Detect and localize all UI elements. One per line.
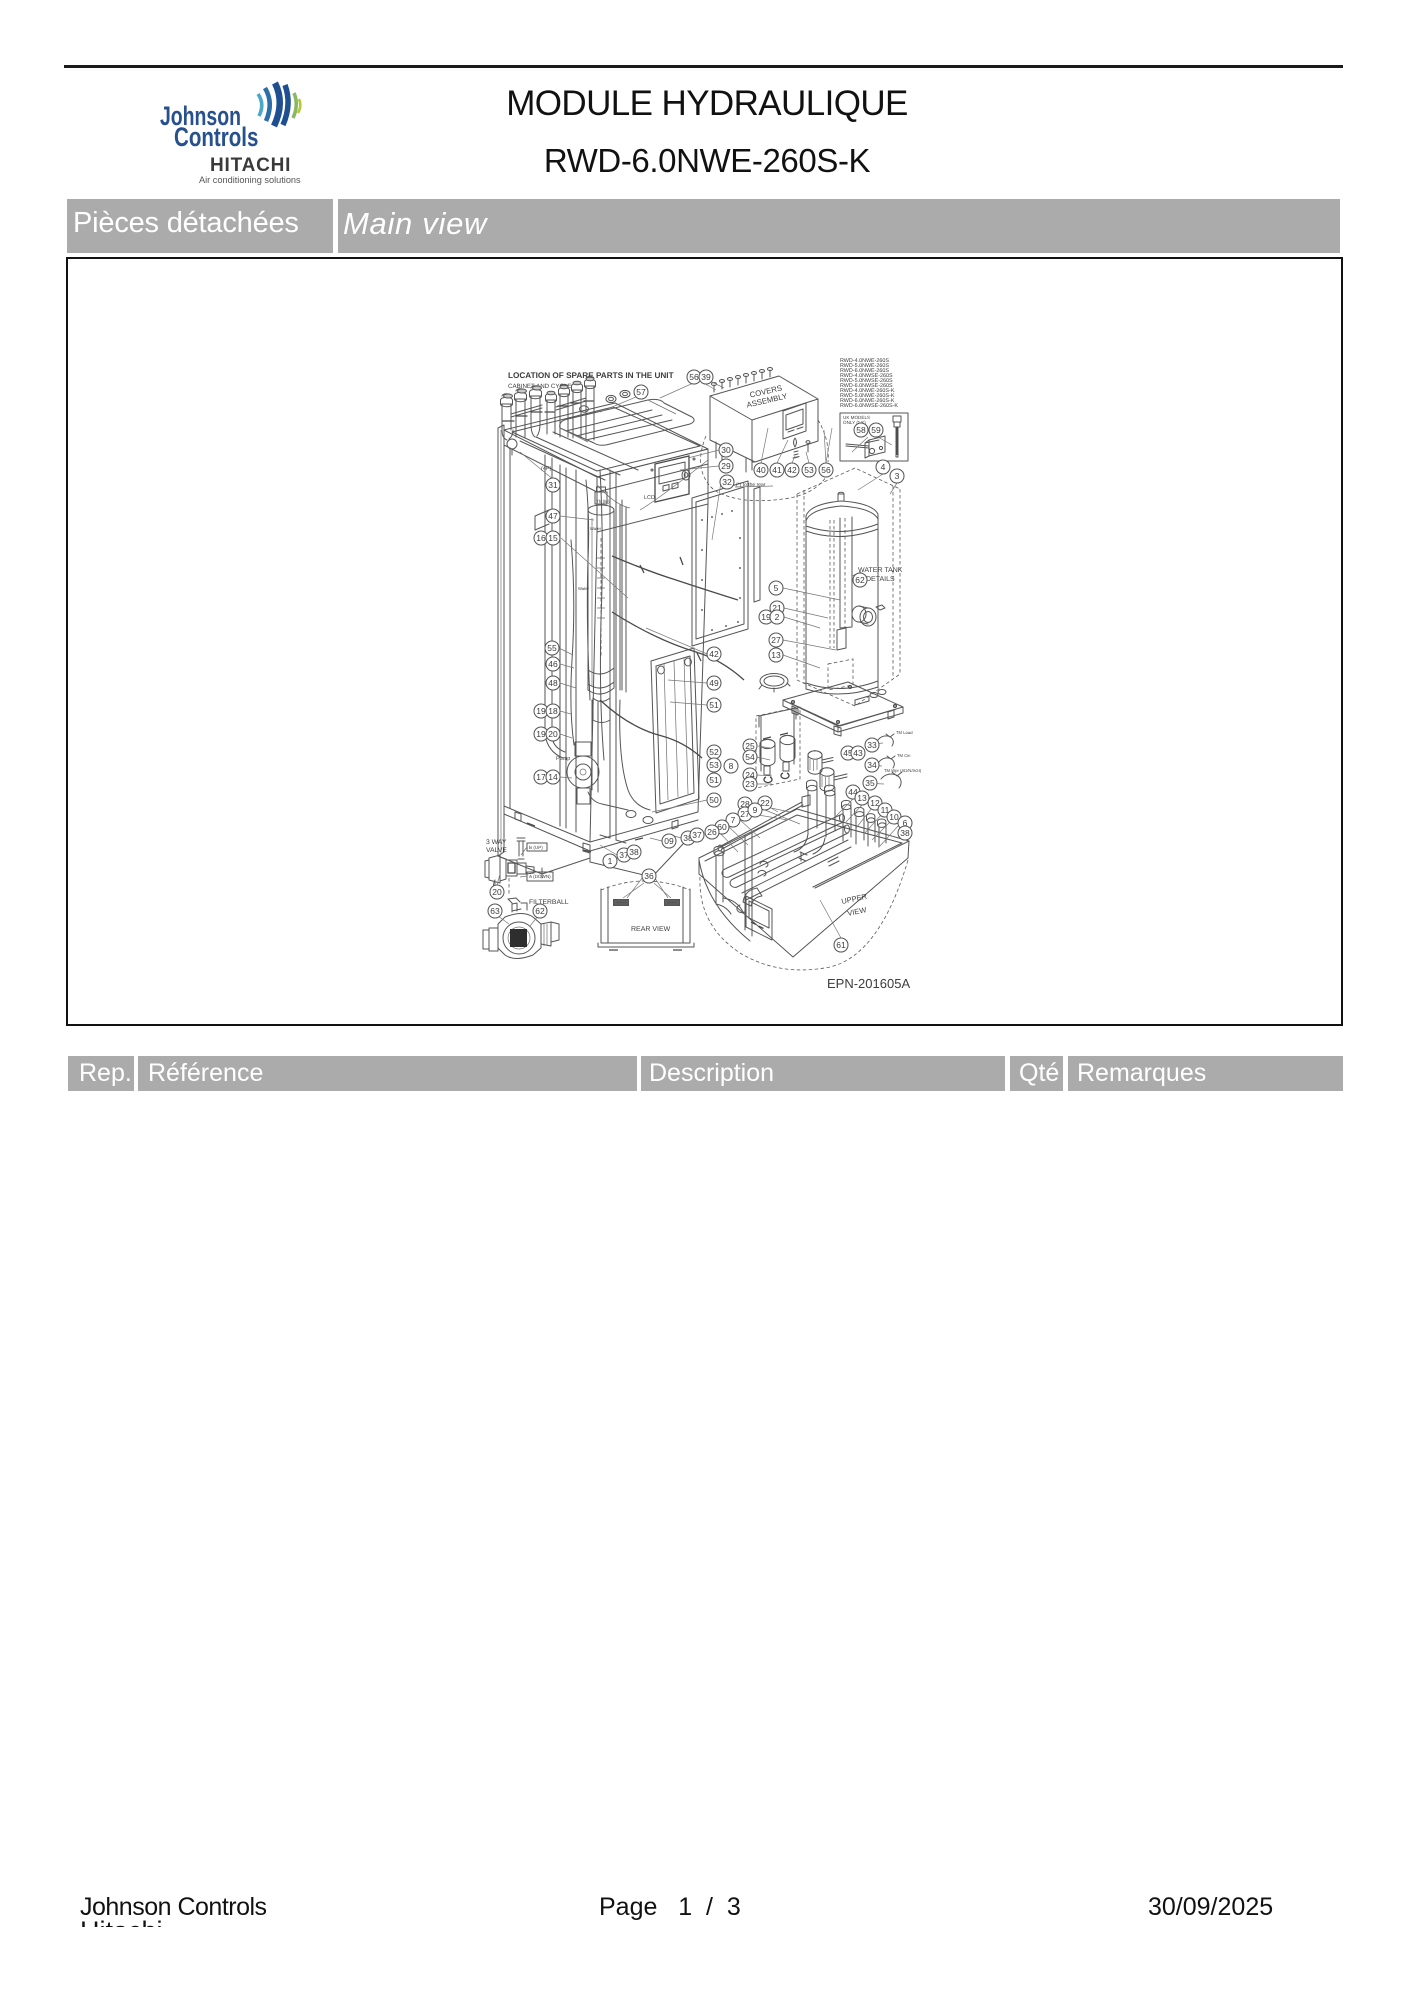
svg-text:Water: Water <box>578 586 590 591</box>
svg-text:3: 3 <box>895 471 900 481</box>
svg-text:09: 09 <box>664 836 674 846</box>
svg-text:36: 36 <box>644 871 654 881</box>
svg-text:22: 22 <box>760 798 770 808</box>
svg-text:VIEW: VIEW <box>847 905 869 918</box>
svg-text:43: 43 <box>853 748 863 758</box>
svg-text:Water: Water <box>590 526 602 531</box>
svg-text:51: 51 <box>709 775 719 785</box>
svg-text:15: 15 <box>548 533 558 543</box>
svg-text:10: 10 <box>889 812 899 822</box>
svg-text:20: 20 <box>548 729 558 739</box>
svg-text:48: 48 <box>548 678 558 688</box>
svg-text:42: 42 <box>787 465 797 475</box>
svg-text:16: 16 <box>536 533 546 543</box>
svg-text:61: 61 <box>836 940 846 950</box>
svg-text:55: 55 <box>547 643 557 653</box>
svg-text:58: 58 <box>856 425 866 435</box>
svg-text:B (UP): B (UP) <box>529 845 543 850</box>
svg-text:51: 51 <box>709 700 719 710</box>
svg-text:5: 5 <box>774 583 779 593</box>
svg-text:30: 30 <box>721 445 731 455</box>
svg-text:17: 17 <box>536 772 546 782</box>
svg-text:2: 2 <box>775 612 780 622</box>
svg-text:42: 42 <box>709 649 719 659</box>
svg-text:62: 62 <box>535 906 545 916</box>
svg-text:13: 13 <box>857 793 867 803</box>
svg-text:56: 56 <box>821 465 831 475</box>
svg-text:19: 19 <box>536 706 546 716</box>
svg-text:32: 32 <box>722 477 732 487</box>
svg-text:A (DOWN): A (DOWN) <box>529 874 551 879</box>
svg-text:14: 14 <box>548 772 558 782</box>
svg-text:Pump: Pump <box>556 756 570 762</box>
svg-text:27: 27 <box>771 635 781 645</box>
svg-text:WATER TANK: WATER TANK <box>858 567 903 574</box>
svg-text:33: 33 <box>867 740 877 750</box>
svg-text:41: 41 <box>772 465 782 475</box>
svg-text:54: 54 <box>745 752 755 762</box>
svg-text:57: 57 <box>636 387 646 397</box>
svg-text:23: 23 <box>745 779 755 789</box>
svg-text:REAR VIEW: REAR VIEW <box>631 926 671 933</box>
svg-text:3 WAY: 3 WAY <box>486 839 507 846</box>
svg-text:38: 38 <box>900 828 910 838</box>
svg-text:59: 59 <box>871 425 881 435</box>
svg-text:Th (M): Th (M) <box>596 499 610 504</box>
svg-text:EPN-201605A: EPN-201605A <box>827 976 910 991</box>
svg-text:53: 53 <box>709 760 719 770</box>
svg-text:8: 8 <box>729 761 734 771</box>
svg-text:53: 53 <box>804 465 814 475</box>
svg-text:LCD: LCD <box>644 495 655 501</box>
svg-text:39: 39 <box>701 372 711 382</box>
svg-text:49: 49 <box>709 678 719 688</box>
svg-text:FILTERBALL: FILTERBALL <box>529 899 569 906</box>
svg-text:38: 38 <box>629 847 639 857</box>
svg-text:63: 63 <box>490 906 500 916</box>
svg-text:46: 46 <box>548 659 558 669</box>
svg-text:TM Wpr (AD/N/AGI): TM Wpr (AD/N/AGI) <box>884 768 922 773</box>
svg-text:18: 18 <box>548 706 558 716</box>
svg-text:1: 1 <box>608 856 613 866</box>
svg-text:TM Load: TM Load <box>896 730 913 735</box>
svg-text:40: 40 <box>756 465 766 475</box>
svg-text:56: 56 <box>689 372 699 382</box>
svg-text:26: 26 <box>707 827 717 837</box>
svg-text:DETAILS: DETAILS <box>866 576 895 583</box>
svg-text:7: 7 <box>731 815 736 825</box>
svg-text:34: 34 <box>867 760 877 770</box>
svg-text:VALVE: VALVE <box>486 847 507 854</box>
svg-text:(4P): (4P) <box>541 466 552 472</box>
svg-text:4: 4 <box>881 462 886 472</box>
svg-text:13: 13 <box>771 650 781 660</box>
svg-text:62: 62 <box>855 575 865 585</box>
svg-text:37: 37 <box>692 830 702 840</box>
svg-text:50: 50 <box>709 795 719 805</box>
svg-text:19: 19 <box>536 729 546 739</box>
svg-text:9: 9 <box>753 805 758 815</box>
svg-text:35: 35 <box>865 778 875 788</box>
svg-text:47: 47 <box>548 511 558 521</box>
svg-text:TM Cin: TM Cin <box>897 753 911 758</box>
svg-text:31: 31 <box>548 480 558 490</box>
svg-text:20: 20 <box>492 887 502 897</box>
svg-text:52: 52 <box>709 747 719 757</box>
svg-text:29: 29 <box>721 461 731 471</box>
svg-text:RWD-6.0NWSE-260S-K: RWD-6.0NWSE-260S-K <box>840 403 898 409</box>
